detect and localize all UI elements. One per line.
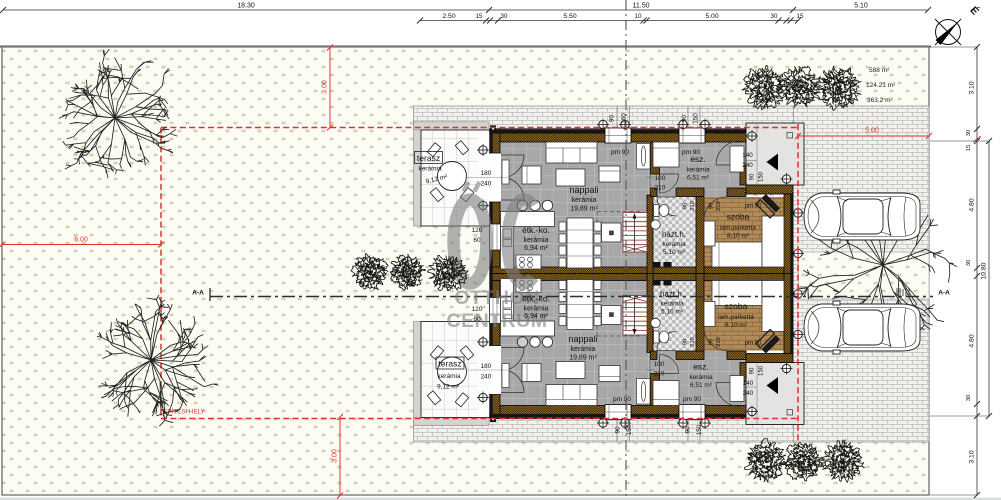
svg-text:pm 90: pm 90 bbox=[745, 204, 762, 210]
svg-text:210: 210 bbox=[654, 371, 665, 378]
svg-text:5,10 m²: 5,10 m² bbox=[663, 249, 686, 256]
svg-text:kerámia: kerámia bbox=[662, 241, 686, 248]
svg-text:étk.-ko.: étk.-ko. bbox=[522, 225, 550, 235]
svg-text:4.80: 4.80 bbox=[969, 198, 976, 211]
svg-text:150: 150 bbox=[759, 171, 765, 182]
svg-text:15: 15 bbox=[966, 145, 972, 151]
svg-text:180: 180 bbox=[481, 363, 492, 370]
svg-text:5.50: 5.50 bbox=[563, 13, 576, 20]
svg-text:363,2 m²: 363,2 m² bbox=[867, 97, 893, 104]
svg-text:nappali: nappali bbox=[568, 334, 597, 344]
svg-text:150: 150 bbox=[696, 424, 703, 435]
svg-text:nappali: nappali bbox=[569, 185, 598, 195]
svg-text:210: 210 bbox=[716, 337, 722, 347]
svg-text:240: 240 bbox=[481, 374, 492, 381]
svg-text:90: 90 bbox=[750, 173, 756, 180]
svg-text:terasz: terasz bbox=[438, 359, 461, 369]
svg-text:588 m²: 588 m² bbox=[869, 67, 890, 74]
svg-text:A-A: A-A bbox=[938, 290, 950, 297]
svg-text:lam.parketta: lam.parketta bbox=[718, 314, 754, 321]
svg-text:30: 30 bbox=[966, 130, 972, 136]
svg-text:30: 30 bbox=[966, 260, 972, 266]
svg-text:5.10: 5.10 bbox=[854, 3, 868, 10]
svg-text:210: 210 bbox=[716, 201, 722, 211]
svg-text:6,51 m²: 6,51 m² bbox=[690, 382, 713, 389]
svg-text:120: 120 bbox=[472, 306, 483, 313]
svg-text:124.21 m²: 124.21 m² bbox=[866, 82, 896, 89]
svg-text:étk.-ko.: étk.-ko. bbox=[522, 294, 550, 304]
svg-text:6.00: 6.00 bbox=[74, 237, 88, 244]
svg-text:90: 90 bbox=[750, 367, 756, 374]
svg-text:140: 140 bbox=[742, 152, 753, 159]
svg-text:30: 30 bbox=[966, 395, 972, 401]
svg-text:15: 15 bbox=[476, 13, 483, 20]
svg-text:10.80: 10.80 bbox=[981, 262, 988, 279]
svg-text:100: 100 bbox=[654, 361, 665, 368]
svg-text:3.10: 3.10 bbox=[969, 450, 976, 463]
svg-text:90: 90 bbox=[683, 203, 689, 209]
svg-text:18.30: 18.30 bbox=[237, 3, 255, 10]
svg-text:pm 90: pm 90 bbox=[613, 396, 631, 403]
svg-text:szoba: szoba bbox=[727, 212, 750, 222]
svg-text:30: 30 bbox=[501, 13, 508, 20]
svg-text:210: 210 bbox=[690, 201, 696, 211]
svg-text:90: 90 bbox=[609, 115, 616, 123]
svg-text:19,89 m²: 19,89 m² bbox=[569, 355, 597, 362]
svg-text:150: 150 bbox=[759, 365, 765, 376]
svg-text:160: 160 bbox=[621, 113, 628, 124]
svg-text:19,89 m²: 19,89 m² bbox=[570, 206, 598, 213]
svg-text:90: 90 bbox=[615, 426, 622, 434]
svg-text:pm 90: pm 90 bbox=[683, 396, 701, 403]
svg-text:kerámia: kerámia bbox=[660, 301, 684, 308]
svg-text:kerámia: kerámia bbox=[686, 167, 710, 174]
svg-text:90: 90 bbox=[709, 203, 715, 209]
svg-text:lam.parketta: lam.parketta bbox=[720, 225, 756, 232]
svg-text:180: 180 bbox=[481, 170, 492, 177]
svg-text:60: 60 bbox=[473, 316, 481, 323]
svg-text:120: 120 bbox=[472, 227, 483, 234]
svg-text:30: 30 bbox=[771, 13, 778, 20]
svg-text:90: 90 bbox=[683, 339, 689, 345]
svg-text:5.00: 5.00 bbox=[705, 13, 718, 20]
svg-text:240: 240 bbox=[481, 181, 492, 188]
svg-text:terasz: terasz bbox=[417, 153, 440, 163]
svg-text:kerámia: kerámia bbox=[689, 374, 713, 381]
svg-text:240: 240 bbox=[742, 162, 753, 169]
svg-text:150: 150 bbox=[693, 113, 700, 124]
svg-text:kerámia: kerámia bbox=[571, 346, 596, 353]
svg-text:8.10 m²: 8.10 m² bbox=[727, 233, 750, 240]
svg-text:100: 100 bbox=[655, 175, 666, 182]
svg-text:15: 15 bbox=[797, 13, 804, 20]
svg-text:A-A: A-A bbox=[192, 290, 204, 297]
svg-text:kerámia: kerámia bbox=[524, 237, 549, 244]
svg-text:11.50: 11.50 bbox=[633, 3, 650, 10]
svg-text:esz.: esz. bbox=[693, 362, 709, 372]
svg-text:210: 210 bbox=[690, 337, 696, 347]
svg-text:pm 90: pm 90 bbox=[682, 149, 700, 156]
svg-text:9,12 m²: 9,12 m² bbox=[437, 384, 460, 391]
svg-text:5.00: 5.00 bbox=[865, 128, 879, 135]
svg-text:kerámia: kerámia bbox=[437, 373, 461, 380]
svg-text:3.10: 3.10 bbox=[969, 81, 976, 94]
svg-text:kerámia: kerámia bbox=[572, 197, 597, 204]
svg-text:kerámia: kerámia bbox=[418, 166, 442, 173]
svg-text:3.00: 3.00 bbox=[332, 449, 339, 463]
svg-text:150: 150 bbox=[626, 424, 633, 435]
svg-text:pm 90: pm 90 bbox=[745, 341, 762, 347]
svg-text:4.80: 4.80 bbox=[969, 334, 976, 347]
svg-text:6,94 m²: 6,94 m² bbox=[524, 245, 548, 252]
svg-text:6,51 m²: 6,51 m² bbox=[687, 175, 710, 182]
svg-text:90: 90 bbox=[709, 339, 715, 345]
svg-text:90: 90 bbox=[685, 426, 692, 434]
svg-text:90: 90 bbox=[681, 115, 688, 123]
svg-text:2.50: 2.50 bbox=[442, 13, 455, 20]
svg-text:házt.h.: házt.h. bbox=[662, 230, 686, 239]
svg-text:240: 240 bbox=[743, 390, 754, 397]
svg-text:szoba: szoba bbox=[725, 301, 748, 311]
svg-text:6,94 m²: 6,94 m² bbox=[524, 313, 548, 320]
svg-text:házt.h.: házt.h. bbox=[660, 290, 684, 299]
svg-text:pm 90: pm 90 bbox=[611, 149, 629, 156]
svg-text:3.00: 3.00 bbox=[322, 80, 329, 94]
svg-text:10: 10 bbox=[635, 13, 642, 20]
svg-text:5,10 m²: 5,10 m² bbox=[661, 309, 684, 316]
svg-text:60: 60 bbox=[473, 237, 481, 244]
svg-text:140: 140 bbox=[743, 380, 754, 387]
svg-text:8.10 m²: 8.10 m² bbox=[725, 322, 748, 329]
svg-text:kerámia: kerámia bbox=[524, 306, 549, 313]
svg-text:210: 210 bbox=[655, 185, 666, 192]
